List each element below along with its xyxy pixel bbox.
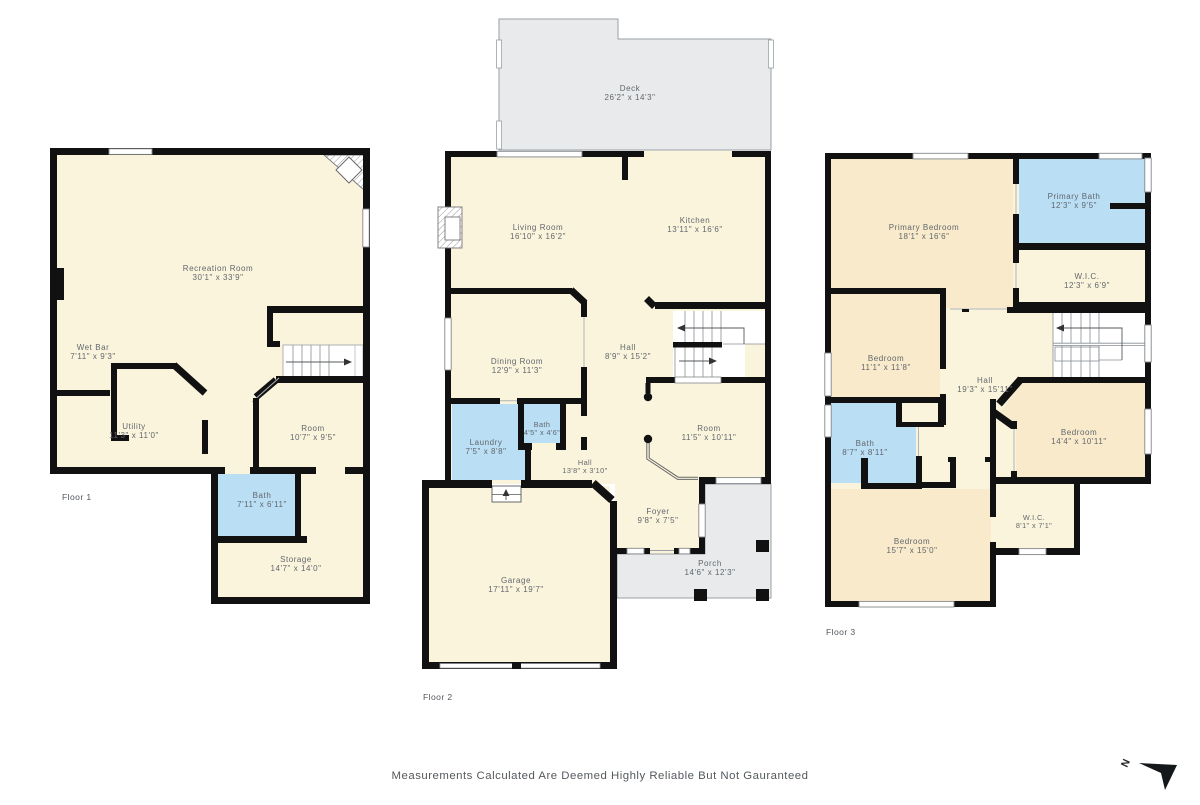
svg-text:7'11" x 6'11": 7'11" x 6'11" [237,500,287,509]
svg-text:8'1" x 7'1": 8'1" x 7'1" [1016,521,1052,530]
svg-text:9'8" x 7'5": 9'8" x 7'5" [637,516,678,525]
svg-text:14'7" x 14'0": 14'7" x 14'0" [270,564,321,573]
svg-text:Bath: Bath [253,491,272,500]
svg-text:Dining Room: Dining Room [491,357,543,366]
svg-text:12'9" x 11'3": 12'9" x 11'3" [492,366,542,375]
svg-text:Living Room: Living Room [513,223,564,232]
svg-text:Floor 2: Floor 2 [423,692,453,702]
svg-text:Primary Bedroom: Primary Bedroom [889,223,960,232]
svg-text:13'8" x 3'10": 13'8" x 3'10" [562,466,607,475]
svg-text:Room: Room [301,424,325,433]
svg-text:Bath: Bath [856,439,875,448]
svg-text:11'1" x 11'8": 11'1" x 11'8" [861,363,911,372]
svg-text:10'7" x 9'5": 10'7" x 9'5" [290,433,336,442]
svg-text:W.I.C.: W.I.C. [1074,272,1099,281]
svg-text:18'1" x 16'6": 18'1" x 16'6" [898,232,949,241]
svg-text:Primary Bath: Primary Bath [1048,192,1101,201]
svg-text:14'4" x 10'11": 14'4" x 10'11" [1051,437,1106,446]
svg-text:Bedroom: Bedroom [1061,428,1097,437]
svg-text:Kitchen: Kitchen [680,216,711,225]
svg-text:Garage: Garage [501,576,531,585]
svg-text:12'3" x 9'5": 12'3" x 9'5" [1051,201,1097,210]
svg-text:16'10" x 16'2": 16'10" x 16'2" [510,232,566,241]
svg-text:Floor 3: Floor 3 [826,627,856,637]
svg-text:4'5" x 4'6": 4'5" x 4'6" [524,428,560,437]
svg-text:7'11" x 9'3": 7'11" x 9'3" [70,352,115,361]
svg-text:13'11" x 16'6": 13'11" x 16'6" [667,225,722,234]
svg-text:11'5" x 10'11": 11'5" x 10'11" [682,433,737,442]
svg-text:30'1" x 33'9": 30'1" x 33'9" [192,273,243,282]
svg-text:17'11" x 19'7": 17'11" x 19'7" [488,585,543,594]
svg-text:Bedroom: Bedroom [894,537,930,546]
svg-text:Wet Bar: Wet Bar [77,343,110,352]
svg-text:Hall: Hall [977,376,993,385]
svg-text:Porch: Porch [698,559,722,568]
svg-text:Measurements Calculated Are De: Measurements Calculated Are Deemed Highl… [392,770,809,782]
svg-text:14'6" x 12'3": 14'6" x 12'3" [684,568,735,577]
svg-text:11'3" x 11'0": 11'3" x 11'0" [109,431,159,440]
svg-text:Foyer: Foyer [646,507,669,516]
svg-text:Laundry: Laundry [470,438,503,447]
svg-text:Room: Room [697,424,721,433]
svg-text:Utility: Utility [122,422,145,431]
svg-text:Storage: Storage [280,555,312,564]
svg-text:12'3" x 6'9": 12'3" x 6'9" [1064,281,1110,290]
svg-text:Deck: Deck [620,84,641,93]
svg-text:Recreation Room: Recreation Room [183,264,254,273]
svg-text:8'7" x 8'11": 8'7" x 8'11" [842,448,887,457]
svg-text:15'7" x 15'0": 15'7" x 15'0" [886,546,937,555]
svg-text:8'9" x 15'2": 8'9" x 15'2" [605,352,651,361]
svg-text:Hall: Hall [620,343,636,352]
svg-text:19'3" x 15'11": 19'3" x 15'11" [957,385,1012,394]
svg-text:Floor 1: Floor 1 [62,492,92,502]
svg-text:26'2" x 14'3": 26'2" x 14'3" [604,93,655,102]
svg-text:7'5" x 8'8": 7'5" x 8'8" [465,447,506,456]
svg-text:Bedroom: Bedroom [868,354,904,363]
